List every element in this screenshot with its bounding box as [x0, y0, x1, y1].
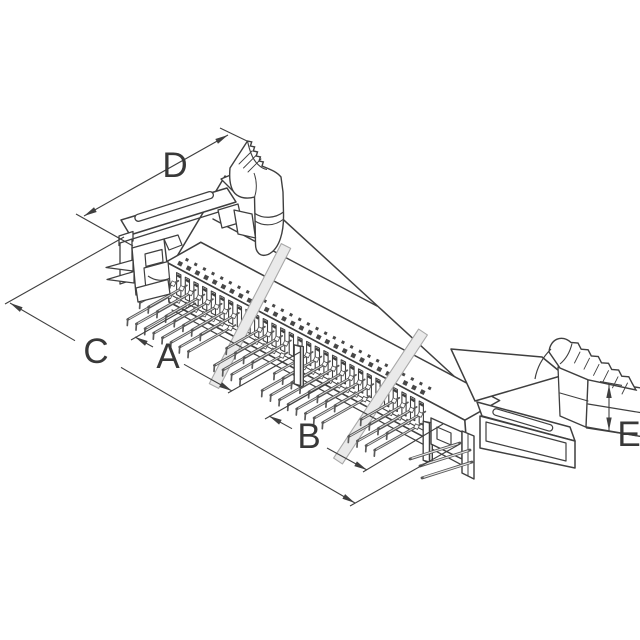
svg-text:B: B — [297, 417, 320, 456]
svg-text:D: D — [162, 146, 187, 185]
svg-text:A: A — [156, 337, 180, 376]
svg-text:C: C — [83, 332, 108, 371]
svg-text:E: E — [617, 415, 640, 454]
